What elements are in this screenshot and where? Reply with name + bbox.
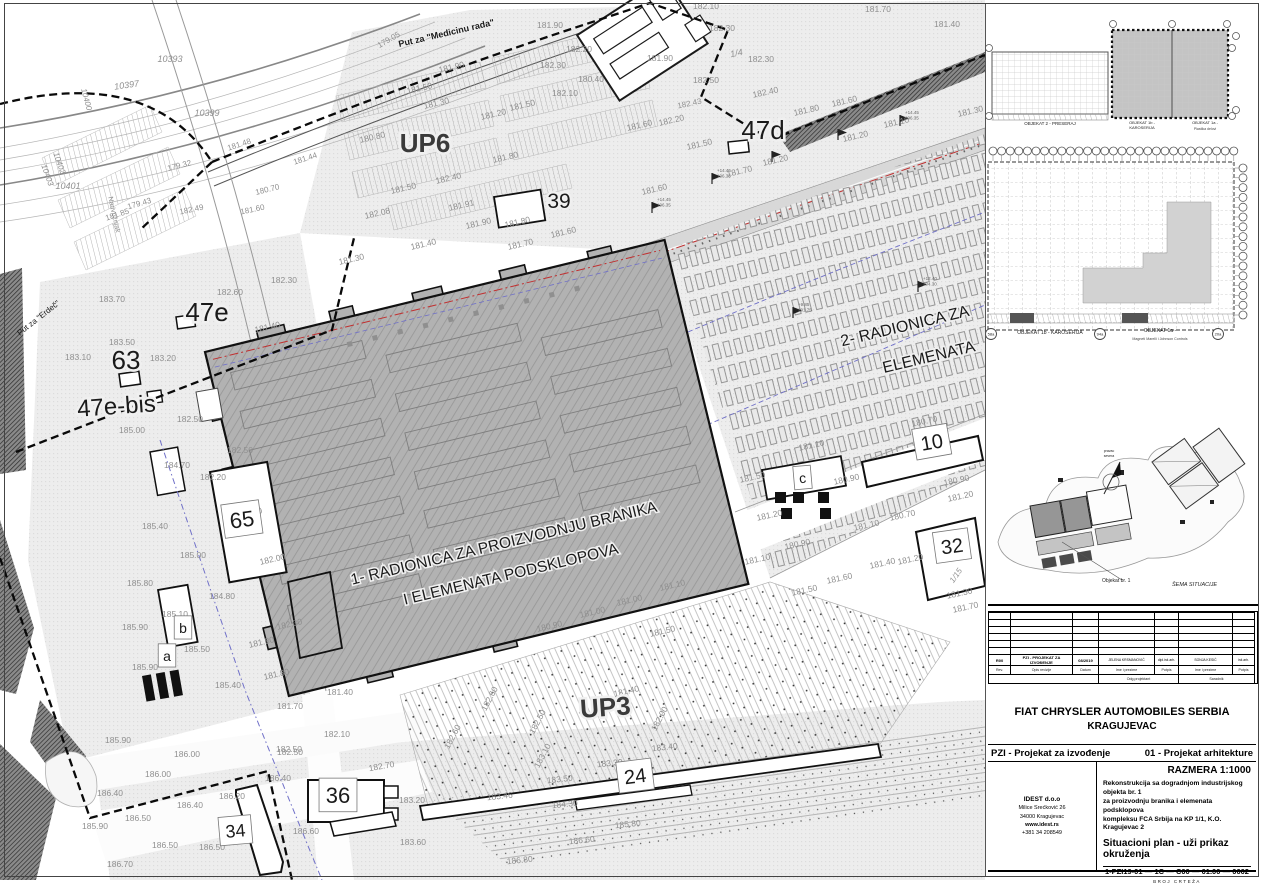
elevation-label: 185.90 [105, 735, 131, 745]
svg-text:185.90: 185.90 [105, 735, 131, 745]
axis-bubble [1135, 147, 1143, 155]
elevation-label: 184.80 [209, 591, 235, 601]
axis-bubble [1015, 147, 1023, 155]
drawing-number-row: 1-PZI19-01 — 1C — C00 — 01.00 — 0002 [1103, 866, 1251, 876]
axis-bubble [986, 45, 993, 52]
elevation-label: 185.40 [215, 680, 241, 690]
svg-text:182.30: 182.30 [271, 275, 297, 285]
elevation-label: 185.00 [180, 550, 206, 560]
role-designer: Odg.projektant [1099, 674, 1179, 683]
elevation-label: 186.40 [177, 800, 203, 810]
elevation-label: 186.70 [107, 859, 133, 869]
key-plan-top [992, 30, 1228, 120]
separator: — [1145, 867, 1153, 876]
svg-text:a: a [163, 648, 171, 664]
axis-bubble [989, 147, 997, 155]
plan-label: 65 [221, 500, 263, 539]
rev-header: Rev. [989, 665, 1011, 674]
axis-bubble [1221, 147, 1229, 155]
plan-label: 24 [616, 758, 655, 793]
gridplan-obj1a-label: OBJEKAT 1a - [1124, 329, 1196, 335]
svg-text:185.50: 185.50 [184, 644, 210, 654]
svg-text:185.90: 185.90 [82, 821, 108, 831]
axis-bubble [1144, 147, 1152, 155]
axis-bubble [986, 113, 993, 120]
panel-divider [985, 3, 986, 877]
elevation-label: 181.90 [647, 53, 673, 63]
drawing-title: Situacioni plan - uži prikaz okruženja [1103, 838, 1251, 860]
elevation-label: 181.70 [277, 701, 303, 711]
elevation-label: 182.30 [709, 23, 735, 33]
axis-bubble [1075, 147, 1083, 155]
drawing-number-p3: C00 [1176, 867, 1190, 876]
svg-text:204.30: 204.30 [923, 282, 937, 287]
schema-object-label: Objekat br. 1 [1102, 579, 1162, 585]
elevation-label: 186.40 [265, 773, 291, 783]
axis-bubble [1239, 174, 1247, 182]
separator: — [1223, 867, 1231, 876]
svg-text:183.20: 183.20 [399, 795, 425, 805]
elevation-label: 10399 [194, 108, 219, 118]
axis-bubble [1239, 262, 1247, 270]
elevation-label: 181.40 [934, 19, 960, 29]
role-associate: Saradnik [1179, 674, 1255, 683]
svg-text:182.10: 182.10 [324, 729, 350, 739]
svg-text:186.40: 186.40 [265, 773, 291, 783]
svg-text:182.50: 182.50 [277, 747, 303, 757]
designer-name: JELENA KRSMANOVIĆ [1099, 654, 1155, 665]
elevation-label: 182.30 [540, 60, 566, 70]
rev-id: R00 [989, 654, 1011, 665]
drawing-sheet: +14.45196.35+14.45196.35+14.45196.35+9.8… [0, 0, 1263, 880]
svg-text:36: 36 [326, 783, 350, 808]
company-block: FIAT CHRYSLER AUTOMOBILES SERBIA KRAGUJE… [988, 706, 1256, 732]
drawing-number-p2: 1C [1154, 867, 1164, 876]
svg-text:10393: 10393 [157, 54, 182, 64]
svg-text:185.90: 185.90 [132, 662, 158, 672]
keyplan-obj1b-label: OBJEKAT 1b - KAROSERIJA [1116, 121, 1168, 130]
svg-text:+12.40: +12.40 [923, 276, 937, 281]
axis-bubble [1006, 147, 1014, 155]
elevation-label: 181.70 [865, 4, 891, 14]
axis-bubble [1110, 21, 1117, 28]
axis-bubble [1239, 223, 1247, 231]
drawing-number-p4: 01.00 [1202, 867, 1221, 876]
keyplan-obj2-label: OBJEKAT 2 - PRESERAJ [992, 121, 1108, 126]
svg-text:186.50: 186.50 [152, 840, 178, 850]
svg-text:+9.85: +9.85 [798, 302, 810, 307]
svg-text:186.40: 186.40 [97, 788, 123, 798]
elevation-label: 182.30 [271, 275, 297, 285]
axis-bubble [1239, 252, 1247, 260]
svg-text:181.40: 181.40 [934, 19, 960, 29]
svg-text:b: b [179, 620, 187, 636]
axis-bubble [1023, 147, 1031, 155]
svg-text:184.70: 184.70 [164, 460, 190, 470]
elevation-label: 182.50 [177, 414, 203, 424]
axis-bubble [1041, 147, 1049, 155]
elevation-label: 182.50 [227, 445, 253, 455]
axis-bubble [1229, 45, 1236, 52]
elevation-label: 182.10 [324, 729, 350, 739]
plan-label: 47e-bis [76, 390, 156, 422]
keyplan-obj1a-sub: Plastika delovi [1182, 127, 1228, 131]
rev-desc: PZI - PROJEKAT ZA IZVOĐENJE [1011, 654, 1073, 665]
axis-bubble [1127, 147, 1135, 155]
elevation-label: 186.60 [293, 826, 319, 836]
svg-text:183.70: 183.70 [99, 294, 125, 304]
separator: — [1192, 867, 1200, 876]
svg-text:47e: 47e [185, 297, 228, 327]
plan-label: 47e [185, 297, 228, 327]
axis-bubble [1170, 147, 1178, 155]
firm-phone: +381 34 208549 [1022, 829, 1062, 837]
elevation-label: 183.20 [150, 353, 176, 363]
svg-text:182.10: 182.10 [552, 88, 578, 98]
axis-bubble [1239, 203, 1247, 211]
plan-label: 32 [932, 528, 971, 564]
plan-label: 63 [112, 345, 141, 375]
elevation-label: 185.00 [119, 425, 145, 435]
svg-text:UP6: UP6 [400, 128, 451, 158]
svg-text:39: 39 [547, 190, 570, 213]
keyplan-obj1a-label: OBJEKAT 1a - [1182, 121, 1228, 126]
axis-bubble [1032, 147, 1040, 155]
axis-bubble [1178, 147, 1186, 155]
svg-text:183.20: 183.20 [150, 353, 176, 363]
axis-bubble [1239, 164, 1247, 172]
axis-bubble [1195, 147, 1203, 155]
rev-desc-header: Opis revizije [1011, 665, 1073, 674]
svg-text:186.00: 186.00 [145, 769, 171, 779]
svg-text:181.90: 181.90 [647, 53, 673, 63]
rev-footer-spacer [989, 674, 1099, 683]
axis-bubble [998, 147, 1006, 155]
elevation-label: 181.90 [537, 20, 563, 30]
plan-label: 47d [741, 115, 784, 145]
project-desc-1: Rekonstrukcija sa dogradnjom industrijsk… [1103, 780, 1251, 798]
elevation-label: 180.40 [578, 74, 604, 84]
axis-bubble [1239, 291, 1247, 299]
elevation-label: 186.00 [174, 749, 200, 759]
axis-bubble [1213, 147, 1221, 155]
svg-text:185.00: 185.00 [119, 425, 145, 435]
elevation-label: 182.30 [748, 54, 774, 64]
separator: — [1166, 867, 1174, 876]
name-header: Ime i prezime [1179, 665, 1233, 674]
svg-text:181.90: 181.90 [537, 20, 563, 30]
elevation-label: 183.70 [99, 294, 125, 304]
svg-text:186.60: 186.60 [293, 826, 319, 836]
axis-bubble [1239, 282, 1247, 290]
elevation-label: 185.40 [142, 521, 168, 531]
elevation-label: 184.70 [164, 460, 190, 470]
svg-text:186.50: 186.50 [125, 813, 151, 823]
axis-bubble [1239, 301, 1247, 309]
plan-label: UP3 [579, 690, 632, 723]
axis-bubble [1109, 147, 1117, 155]
drawing-number-p1: 1-PZI19-01 [1105, 867, 1143, 876]
plan-label: a [158, 644, 176, 667]
svg-text:32: 32 [940, 535, 965, 560]
axis-bubble [1187, 147, 1195, 155]
company-name: FIAT CHRYSLER AUTOMOBILES SERBIA [988, 706, 1256, 718]
axis-bubble [1239, 184, 1247, 192]
svg-text:10399: 10399 [194, 108, 219, 118]
scale-label: RAZMERA 1:1000 [1103, 765, 1251, 776]
svg-text:182.50: 182.50 [227, 445, 253, 455]
svg-text:181.70: 181.70 [277, 701, 303, 711]
axis-bubble [1239, 242, 1247, 250]
axis-bubble [1152, 147, 1160, 155]
svg-text:181.70: 181.70 [865, 4, 891, 14]
designer-title: dipl.inž.arh. [1155, 654, 1179, 665]
svg-text:201.75: 201.75 [798, 308, 812, 313]
plan-label: c [793, 465, 812, 490]
axis-bubble [1058, 147, 1066, 155]
revision-table: R00 PZI - PROJEKAT ZA IZVOĐENJE 08/2019 … [988, 611, 1258, 684]
svg-text:182.30: 182.30 [748, 54, 774, 64]
axis-bubble [1230, 147, 1238, 155]
svg-text:180.40: 180.40 [578, 74, 604, 84]
svg-text:34: 34 [225, 820, 247, 842]
svg-text:UP3: UP3 [579, 690, 632, 723]
compass-label-1: pravac [1094, 449, 1124, 453]
elevation-label: 185.90 [122, 622, 148, 632]
plan-label: 36 [319, 778, 357, 812]
svg-text:186.40: 186.40 [177, 800, 203, 810]
elevation-label: 182.50 [693, 75, 719, 85]
elevation-label: 186.40 [97, 788, 123, 798]
elevation-label: 186.00 [145, 769, 171, 779]
elevation-label: 182.10 [552, 88, 578, 98]
svg-text:182.30: 182.30 [709, 23, 735, 33]
elevation-label: 185.50 [184, 644, 210, 654]
associate-title: inž.arh. [1233, 654, 1255, 665]
gridplan-obj1b-label: OBJEKAT 1b - KAROSERIJA [1000, 331, 1100, 337]
elevation-label: 182.60 [217, 287, 243, 297]
svg-text:10401: 10401 [55, 181, 80, 191]
gridplan-obj1a-sub: Magneti Marelli i Johnson Controls [1114, 337, 1206, 341]
elevation-label: 185.90 [82, 821, 108, 831]
svg-text:186.70: 186.70 [107, 859, 133, 869]
svg-text:185.40: 185.40 [215, 680, 241, 690]
svg-text:24: 24 [623, 765, 648, 790]
svg-text:182.20: 182.20 [566, 44, 592, 54]
name-header: Ime i prezime [1099, 665, 1155, 674]
svg-text:184.80: 184.80 [209, 591, 235, 601]
location-schema-map [998, 419, 1246, 580]
title-block: R00 PZI - PROJEKAT ZA IZVOĐENJE 08/2019 … [988, 604, 1258, 874]
axis-bubble [1092, 147, 1100, 155]
svg-text:63: 63 [112, 345, 141, 375]
phase-left: PZI - Projekat za izvođenje [991, 748, 1110, 759]
svg-text:182.20: 182.20 [200, 472, 226, 482]
svg-text:181.40: 181.40 [327, 687, 353, 697]
svg-text:65: 65 [228, 505, 256, 533]
svg-text:185.90: 185.90 [122, 622, 148, 632]
elevation-label: 10393 [157, 54, 182, 64]
svg-text:+14.45: +14.45 [657, 197, 671, 202]
elevation-label: 10401 [55, 181, 80, 191]
svg-text:182.30: 182.30 [540, 60, 566, 70]
axis-bubble [1066, 147, 1074, 155]
associate-name: SONJA KESIĆ [1179, 654, 1233, 665]
elevation-label: 182.20 [566, 44, 592, 54]
svg-text:185.00: 185.00 [180, 550, 206, 560]
axis-bubble [1224, 21, 1231, 28]
phase-row: PZI - Projekat za izvođenje 01 - Projeka… [988, 744, 1256, 762]
drawing-number-p5: 0002 [1232, 867, 1249, 876]
svg-text:c: c [798, 470, 806, 487]
rev-date-header: Datum [1073, 665, 1099, 674]
key-plan-grid [988, 162, 1234, 330]
axis-bubble-label: 20a [1215, 332, 1222, 337]
axis-bubble [1233, 107, 1240, 114]
axis-bubble [1049, 147, 1057, 155]
schema-title-label: ŠEMA SITUACIJE [1172, 582, 1252, 588]
axis-bubble [1239, 272, 1247, 280]
elevation-label: 182.20 [200, 472, 226, 482]
svg-text:185.80: 185.80 [127, 578, 153, 588]
axis-bubble [1233, 33, 1240, 40]
plan-label: 34 [218, 815, 253, 846]
plan-label: b [174, 616, 192, 639]
svg-text:196.35: 196.35 [657, 203, 671, 208]
project-desc-3: kompleksu FCA Srbija na KP 1/1, K.O. Kra… [1103, 816, 1251, 834]
rev-date: 08/2019 [1073, 654, 1099, 665]
plan-label: 10 [912, 423, 952, 460]
project-desc-2: za proizvodnju branika i elemenata podsk… [1103, 798, 1251, 816]
company-city: KRAGUJEVAC [988, 721, 1256, 732]
elevation-label: 186.50 [125, 813, 151, 823]
svg-text:47e-bis: 47e-bis [76, 390, 156, 422]
svg-text:186.00: 186.00 [174, 749, 200, 759]
sign-header: Potpis [1233, 665, 1255, 674]
axis-bubble [1239, 233, 1247, 241]
svg-text:182.10: 182.10 [693, 1, 719, 11]
elevation-label: 185.90 [132, 662, 158, 672]
svg-text:183.10: 183.10 [65, 352, 91, 362]
axis-bubble [1204, 147, 1212, 155]
firm-city: 34000 Kragujevac [1020, 813, 1064, 821]
elevation-label: 186.50 [152, 840, 178, 850]
sign-header: Potpis [1155, 665, 1179, 674]
svg-text:10: 10 [919, 430, 945, 456]
axis-bubble [1239, 311, 1247, 319]
plan-label: 39 [547, 190, 570, 213]
phase-right: 01 - Projekat arhitekture [1145, 748, 1253, 759]
firm-website: www.idest.rs [1025, 821, 1059, 829]
axis-bubble [1239, 213, 1247, 221]
svg-text:182.50: 182.50 [693, 75, 719, 85]
elevation-label: 182.10 [693, 1, 719, 11]
axis-bubble [1101, 147, 1109, 155]
elevation-label: 182.50 [277, 747, 303, 757]
axis-bubble [1161, 147, 1169, 155]
compass-label-2: severa [1094, 454, 1124, 458]
elevation-label: 186.20 [219, 791, 245, 801]
svg-text:183.60: 183.60 [400, 837, 426, 847]
drawing-info-cell: RAZMERA 1:1000 Rekonstrukcija sa dogradn… [1097, 762, 1256, 870]
svg-text:186.20: 186.20 [219, 791, 245, 801]
main-plan: +14.45196.35+14.45196.35+14.45196.35+9.8… [0, 0, 985, 880]
axis-bubble [1118, 147, 1126, 155]
svg-text:182.50: 182.50 [177, 414, 203, 424]
elevation-label: 183.60 [400, 837, 426, 847]
plan-label: UP6 [400, 128, 451, 158]
elevation-label: 185.80 [127, 578, 153, 588]
axis-bubble [1169, 21, 1176, 28]
title-block-lower: IDEST d.o.o Milice Srećković 26 34000 Kr… [988, 762, 1256, 872]
svg-text:182.60: 182.60 [217, 287, 243, 297]
svg-text:47d: 47d [741, 115, 784, 145]
axis-bubble-label: 58a [988, 332, 995, 337]
firm-cell: IDEST d.o.o Milice Srećković 26 34000 Kr… [988, 762, 1097, 870]
elevation-label: 183.20 [399, 795, 425, 805]
firm-address: Milice Srećković 26 [1018, 804, 1065, 812]
elevation-label: 181.40 [327, 687, 353, 697]
axis-bubble [1239, 193, 1247, 201]
drawing-number-caption: BROJ CRTEŽA [1103, 876, 1251, 886]
svg-text:185.40: 185.40 [142, 521, 168, 531]
firm-name: IDEST d.o.o [1024, 795, 1060, 805]
elevation-label: 183.10 [65, 352, 91, 362]
axis-bubble [1084, 147, 1092, 155]
